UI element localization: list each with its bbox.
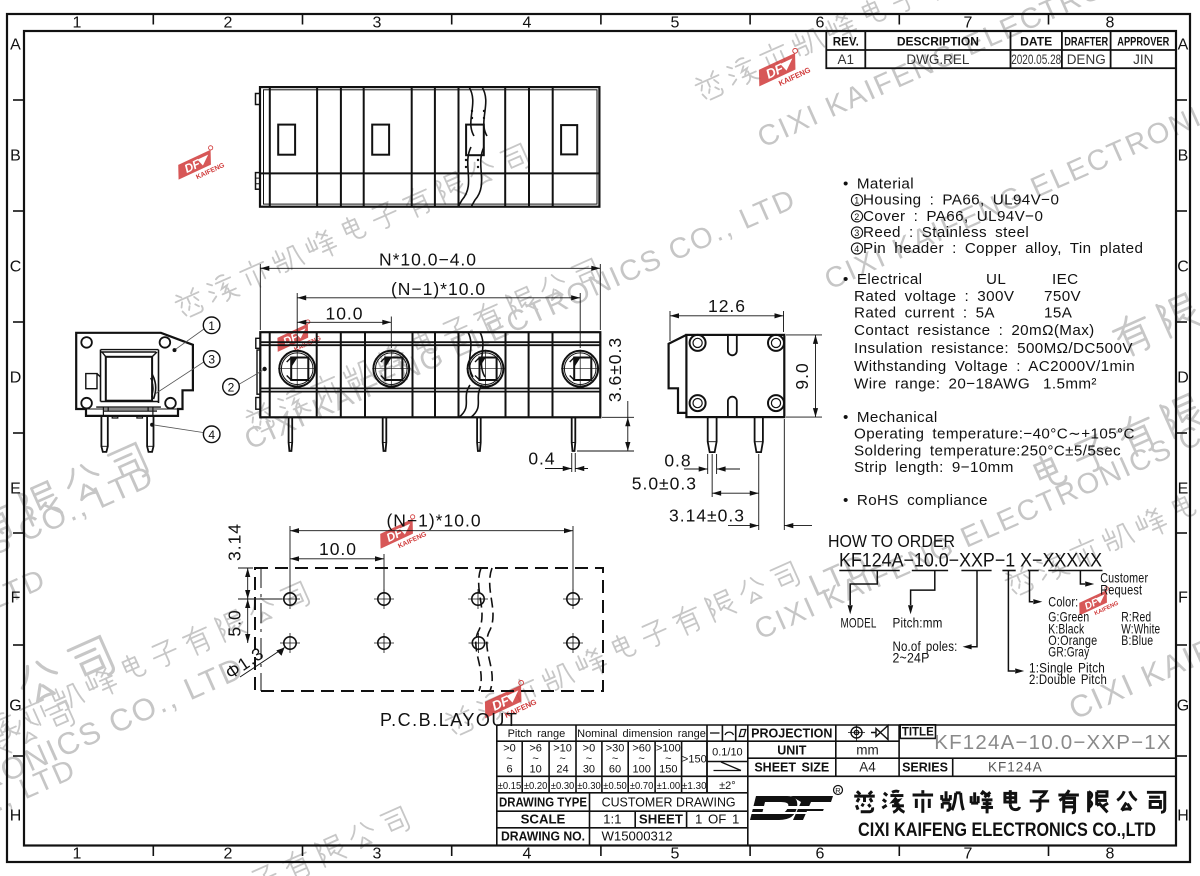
svg-text:3.14±0.3: 3.14±0.3 [669, 506, 745, 526]
svg-text:IEC: IEC [1052, 271, 1079, 288]
svg-text:1: 1 [854, 196, 859, 206]
svg-text:R: R [835, 786, 841, 795]
svg-text:CUSTOMER DRAWING: CUSTOMER DRAWING [602, 795, 736, 810]
svg-text:SCALE: SCALE [521, 812, 566, 827]
svg-text:±0.70: ±0.70 [630, 781, 654, 792]
svg-text:(N−1)*10.0: (N−1)*10.0 [386, 511, 481, 531]
svg-text:150: 150 [659, 764, 677, 776]
svg-text:G: G [9, 698, 21, 715]
svg-text:750V: 750V [1044, 288, 1082, 305]
svg-text:G: G [1177, 698, 1189, 715]
svg-text:1 OF 1: 1 OF 1 [695, 812, 739, 827]
svg-text:Operating temperature:−40°C∼+1: Operating temperature:−40°C∼+105°C [854, 426, 1135, 443]
svg-text:E: E [10, 481, 21, 498]
svg-text:A: A [1178, 37, 1189, 54]
svg-text:TITLE: TITLE [902, 727, 934, 739]
svg-text:E: E [1178, 481, 1189, 498]
svg-text:• Mechanical: • Mechanical [843, 409, 938, 426]
svg-text:±0.30: ±0.30 [577, 781, 601, 792]
svg-text:SHEET SIZE: SHEET SIZE [754, 761, 829, 775]
svg-text:6: 6 [816, 15, 825, 32]
svg-text:1:1: 1:1 [603, 812, 621, 827]
svg-text:2: 2 [854, 212, 859, 222]
svg-text:±1.30: ±1.30 [682, 781, 707, 792]
svg-text:±2°: ±2° [719, 780, 736, 792]
svg-text:7: 7 [964, 846, 973, 863]
svg-text:GR:Gray: GR:Gray [1048, 645, 1089, 660]
svg-text:24: 24 [556, 764, 568, 776]
svg-text:1: 1 [208, 319, 215, 333]
svg-text:10.0: 10.0 [319, 539, 357, 559]
svg-text:1: 1 [73, 15, 82, 32]
svg-text:Cover : PA66, UL94V−0: Cover : PA66, UL94V−0 [863, 208, 1043, 225]
svg-text:N*10.0−4.0: N*10.0−4.0 [379, 250, 477, 270]
svg-text:Wire range: 20−18AWG: Wire range: 20−18AWG [854, 376, 1030, 393]
svg-text:mm: mm [856, 743, 879, 758]
svg-text:3: 3 [208, 353, 215, 367]
svg-text:2: 2 [224, 846, 233, 863]
svg-text:5: 5 [671, 846, 680, 863]
svg-text:F: F [11, 590, 21, 607]
svg-text:KF124A−10.0−XXP−1 X−XXXXX: KF124A−10.0−XXP−1 X−XXXXX [839, 551, 1102, 572]
svg-text:3: 3 [373, 846, 382, 863]
svg-text:4: 4 [523, 846, 532, 863]
svg-text:Rated voltage : 300V: Rated voltage : 300V [854, 288, 1015, 305]
svg-text:2020.05.28: 2020.05.28 [1011, 52, 1061, 67]
svg-text:W15000312: W15000312 [601, 829, 672, 844]
svg-text:12.6: 12.6 [708, 296, 746, 316]
svg-text:Pitch range: Pitch range [508, 728, 566, 740]
svg-text:D: D [1177, 370, 1189, 387]
svg-text:DRAFTER: DRAFTER [1064, 35, 1108, 49]
svg-text:Withstanding Voltage : AC2000V: Withstanding Voltage : AC2000V/1min [854, 358, 1135, 375]
svg-text:1: 1 [73, 846, 82, 863]
svg-text:6: 6 [506, 764, 512, 776]
svg-text:SERIES: SERIES [902, 761, 948, 775]
svg-text:HOW TO ORDER: HOW TO ORDER [828, 531, 955, 551]
svg-text:7: 7 [964, 15, 973, 32]
svg-text:KF124A−10.0−XXP−1X: KF124A−10.0−XXP−1X [934, 731, 1172, 754]
svg-text:2: 2 [228, 380, 235, 394]
svg-text:9.0: 9.0 [792, 362, 812, 389]
svg-text:6: 6 [816, 846, 825, 863]
svg-text:3.14: 3.14 [225, 523, 245, 561]
svg-text:DRAWING TYPE: DRAWING TYPE [499, 795, 587, 810]
svg-text:0.8: 0.8 [664, 451, 691, 471]
svg-text:H: H [1177, 808, 1189, 825]
svg-text:A4: A4 [859, 760, 876, 775]
svg-text:H: H [10, 808, 22, 825]
svg-text:• Material: • Material [843, 176, 914, 193]
svg-text:REV.: REV. [833, 35, 859, 49]
svg-text:JIN: JIN [1133, 52, 1153, 67]
svg-text:1.5mm²: 1.5mm² [1043, 376, 1097, 393]
svg-text:4: 4 [523, 15, 532, 32]
svg-text:DATE: DATE [1020, 35, 1052, 49]
svg-text:B: B [1178, 148, 1189, 165]
svg-text:>150: >150 [682, 754, 707, 766]
svg-text:3.6±0.3: 3.6±0.3 [605, 337, 625, 402]
svg-text:CIXI KAIFENG ELECTRONICS CO.,L: CIXI KAIFENG ELECTRONICS CO.,LTD [858, 819, 1156, 841]
svg-text:4: 4 [854, 244, 859, 254]
svg-text:Insulation resistance: 500MΩ/D: Insulation resistance: 500MΩ/DC500V [854, 340, 1133, 357]
svg-text:Pitch:mm: Pitch:mm [893, 616, 943, 631]
svg-text:Housing : PA66, UL94V−0: Housing : PA66, UL94V−0 [863, 192, 1059, 209]
svg-text:Strip length: 9−10mm: Strip length: 9−10mm [854, 459, 1014, 476]
svg-text:5: 5 [671, 15, 680, 32]
svg-text:B:Blue: B:Blue [1121, 633, 1153, 648]
svg-text:Soldering temperature:250°C±5/: Soldering temperature:250°C±5/5sec [854, 443, 1121, 460]
svg-text:SHEET: SHEET [639, 812, 683, 827]
svg-text:C: C [1177, 259, 1189, 276]
svg-text:DRAWING NO.: DRAWING NO. [501, 829, 585, 844]
svg-text:0.4: 0.4 [528, 449, 555, 469]
svg-text:Rated current : 5A: Rated current : 5A [854, 305, 995, 322]
svg-text:APPROVER: APPROVER [1117, 35, 1169, 49]
svg-text:F: F [1178, 590, 1188, 607]
svg-text:Nominal dimension range: Nominal dimension range [577, 728, 706, 740]
svg-text:PROJECTION: PROJECTION [751, 727, 832, 741]
svg-text:3: 3 [854, 228, 859, 238]
svg-text:10.0: 10.0 [325, 304, 363, 324]
svg-text:DESCRIPTION: DESCRIPTION [897, 35, 979, 49]
svg-text:Request: Request [1100, 583, 1142, 598]
svg-text:2~24P: 2~24P [893, 651, 930, 666]
svg-text:UL: UL [986, 271, 1006, 288]
svg-text:A1: A1 [838, 52, 855, 67]
svg-text:B: B [10, 148, 21, 165]
svg-text:8: 8 [1106, 846, 1115, 863]
svg-text:100: 100 [632, 764, 650, 776]
svg-text:15A: 15A [1044, 305, 1073, 322]
svg-text:±1.00: ±1.00 [657, 781, 681, 792]
svg-text:• RoHS compliance: • RoHS compliance [843, 492, 988, 509]
svg-text:• Electrical: • Electrical [843, 271, 922, 288]
svg-text:5.0±0.3: 5.0±0.3 [632, 474, 697, 494]
svg-text:Reed : Stainless steel: Reed : Stainless steel [863, 224, 1029, 241]
svg-text:(N−1)*10.0: (N−1)*10.0 [391, 279, 486, 299]
svg-text:Pin header : Copper alloy, Tin: Pin header : Copper alloy, Tin plated [863, 240, 1143, 257]
svg-text:Color:: Color: [1048, 595, 1078, 610]
svg-text:3: 3 [373, 15, 382, 32]
svg-text:2:Double Pitch: 2:Double Pitch [1029, 672, 1107, 687]
svg-text:MODEL: MODEL [841, 616, 877, 631]
svg-text:D: D [10, 370, 22, 387]
svg-text:10: 10 [530, 764, 542, 776]
svg-text:P.C.B.LAYOUT: P.C.B.LAYOUT [380, 710, 518, 730]
svg-text:±0.50: ±0.50 [603, 781, 627, 792]
svg-text:KF124A: KF124A [988, 760, 1043, 775]
svg-text:4: 4 [208, 428, 215, 442]
svg-text:UNIT: UNIT [777, 744, 807, 758]
svg-text:30: 30 [583, 764, 595, 776]
svg-text:5.0: 5.0 [225, 609, 245, 636]
svg-text:C: C [10, 259, 22, 276]
svg-text:A: A [10, 37, 21, 54]
svg-text:2: 2 [224, 15, 233, 32]
svg-text:8: 8 [1106, 15, 1115, 32]
svg-text:±0.20: ±0.20 [524, 781, 548, 792]
svg-text:±0.30: ±0.30 [551, 781, 575, 792]
svg-text:60: 60 [609, 764, 621, 776]
svg-text:Contact resistance : 20mΩ(Max): Contact resistance : 20mΩ(Max) [854, 322, 1095, 339]
svg-text:±0.15: ±0.15 [498, 781, 522, 792]
svg-text:DWG.REL: DWG.REL [906, 52, 969, 67]
svg-text:0.1/10: 0.1/10 [712, 747, 743, 759]
svg-text:DENG: DENG [1067, 52, 1106, 67]
